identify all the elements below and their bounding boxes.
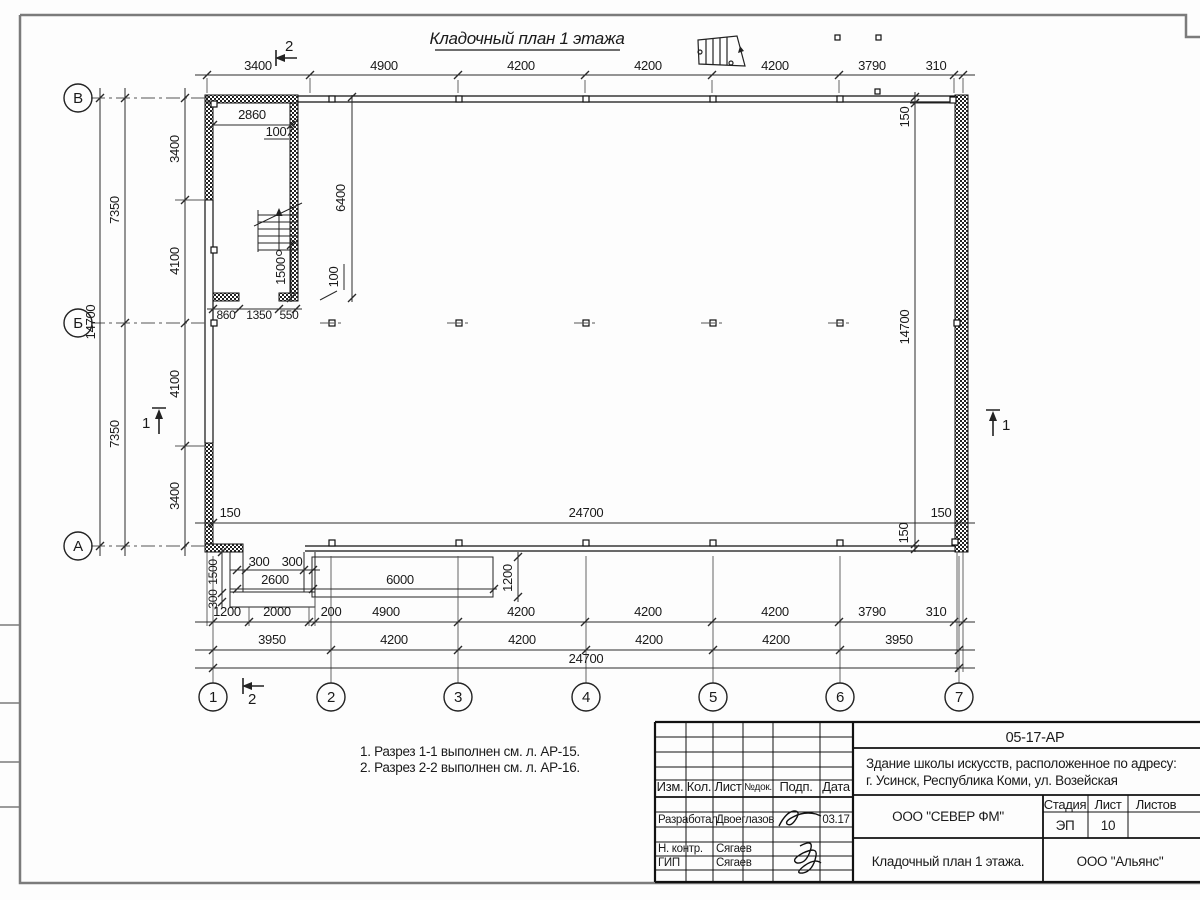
column-markers <box>211 35 960 546</box>
wall-left-top <box>205 95 213 200</box>
axis-bubble-3: 3 <box>454 689 462 706</box>
tb-org-main: ООО "СЕВЕР ФМ" <box>892 809 1004 824</box>
axis-bubble-7: 7 <box>955 689 963 706</box>
dim-label: 24700 <box>569 651 604 666</box>
dim-label: 3400 <box>167 482 182 510</box>
dim-label: 150 <box>931 505 952 520</box>
section-1-label-left: 1 <box>142 415 150 432</box>
axis-bubble-1: 1 <box>209 689 217 706</box>
dim-label: 1350 <box>246 308 272 322</box>
dim-label: 4200 <box>507 58 535 73</box>
dim-label: 1500 <box>206 559 220 585</box>
section-1-label-right: 1 <box>1002 417 1010 434</box>
tb-sheet-value: 10 <box>1101 818 1115 833</box>
dimensions <box>96 71 975 672</box>
dim-label: 14700 <box>897 310 912 345</box>
tb-name-gip: Сягаев <box>716 857 752 869</box>
tb-role-developer: Разработал <box>658 814 718 826</box>
dim-label: 4900 <box>372 604 400 619</box>
masonry-plan-drawing: Кладочный план 1 этажа <box>0 0 1200 900</box>
dim-label: 14700 <box>83 305 98 340</box>
notes: 1. Разрез 1-1 выполнен см. л. АР-15. 2. … <box>360 744 580 775</box>
dim-label: 1500 <box>273 257 288 285</box>
dim-label: 150 <box>896 523 911 544</box>
keyplan-symbol <box>698 36 745 66</box>
dim-label: 4200 <box>634 604 662 619</box>
axis-bubble-5: 5 <box>709 689 717 706</box>
dim-label: 4200 <box>762 632 790 647</box>
tb-sheet-title: Кладочный план 1 этажа. <box>872 854 1025 869</box>
plan-title: Кладочный план 1 этажа <box>430 29 625 48</box>
section-2-label-bottom: 2 <box>248 691 256 708</box>
title-block: Изм. Кол. Лист №док. Подп. Дата Разработ… <box>655 722 1200 882</box>
dim-label: 3950 <box>258 632 286 647</box>
dim-label: 4200 <box>635 632 663 647</box>
wall-left-bottom <box>205 443 213 552</box>
dim-label: 4200 <box>508 632 536 647</box>
dim-label: 1200 <box>213 604 241 619</box>
axis-bubble-a: А <box>73 538 83 555</box>
tb-org-secondary: ООО "Альянс" <box>1077 854 1164 869</box>
dim-label: 3400 <box>167 135 182 163</box>
dim-label: 310 <box>926 604 947 619</box>
wall-stair-stub-left <box>213 293 239 301</box>
dim-label: 3950 <box>885 632 913 647</box>
dim-label: 300 <box>282 554 303 569</box>
dim-label: 4900 <box>370 58 398 73</box>
dim-label: 4200 <box>761 604 789 619</box>
dim-label: 7350 <box>107 420 122 448</box>
axis-bubble-6: 6 <box>836 689 844 706</box>
wall-top-window <box>298 96 955 102</box>
tb-name-ncontr: Сягаев <box>716 843 752 855</box>
tb-col-data: Дата <box>822 779 851 794</box>
note-line-2: 2. Разрез 2-2 выполнен см. л. АР-16. <box>360 760 580 775</box>
axis-bubble-b: Б <box>73 315 83 332</box>
dim-label: 4200 <box>634 58 662 73</box>
tb-col-izm: Изм. <box>657 779 684 794</box>
tb-project-line2: г. Усинск, Республика Коми, ул. Возейска… <box>866 773 1118 788</box>
dim-label: 2860 <box>238 107 266 122</box>
dim-label: 200 <box>321 604 342 619</box>
dim-label: 100 <box>266 124 287 139</box>
tb-col-podp: Подп. <box>779 779 812 794</box>
wall-bottom-window <box>305 546 955 551</box>
note-line-1: 1. Разрез 1-1 выполнен см. л. АР-15. <box>360 744 580 759</box>
tb-role-ncontr: Н. контр. <box>658 843 703 855</box>
dim-label: 7350 <box>107 196 122 224</box>
section-2-label-top: 2 <box>285 38 293 55</box>
tb-project-line1: Здание школы искусств, расположенное по … <box>866 756 1177 771</box>
tb-doc-code: 05-17-АР <box>1006 730 1065 746</box>
dim-label: 4100 <box>167 370 182 398</box>
plan-title-group: Кладочный план 1 этажа <box>430 29 625 50</box>
dim-label: 3790 <box>858 58 886 73</box>
dim-label: 1200 <box>500 564 515 592</box>
tb-role-gip: ГИП <box>658 857 680 869</box>
dim-label: 2600 <box>261 572 289 587</box>
dim-label: 550 <box>279 308 299 322</box>
axis-bubble-2: 2 <box>327 689 335 706</box>
tb-sheets-label: Листов <box>1136 797 1177 812</box>
dim-label: 4200 <box>761 58 789 73</box>
tb-col-kol: Кол. <box>687 779 712 794</box>
dim-label: 100 <box>326 267 341 288</box>
dim-label: 860 <box>216 308 236 322</box>
dim-label: 4200 <box>507 604 535 619</box>
dim-label: 4100 <box>167 247 182 275</box>
drawing-sheet: Кладочный план 1 этажа <box>0 0 1200 900</box>
tb-name-developer: Двоеглазов <box>716 814 774 826</box>
dim-label: 6000 <box>386 572 414 587</box>
dim-label: 150 <box>220 505 241 520</box>
tb-date-developer: 03.17 <box>822 814 849 826</box>
dim-label: 150 <box>897 107 912 128</box>
dim-label: 3400 <box>244 58 272 73</box>
tb-stage-label: Стадия <box>1044 797 1087 812</box>
tb-col-list: Лист <box>714 779 741 794</box>
axis-bubble-4: 4 <box>582 689 590 706</box>
dim-label: 3790 <box>858 604 886 619</box>
axis-bubble-v: В <box>73 90 83 107</box>
tb-col-ndok: №док. <box>744 782 772 793</box>
dim-label: 6400 <box>333 184 348 212</box>
dim-label: 4200 <box>380 632 408 647</box>
dim-label: 300 <box>249 554 270 569</box>
tb-sheet-label: Лист <box>1094 797 1121 812</box>
dim-label: 24700 <box>569 505 604 520</box>
tb-stage-value: ЭП <box>1056 818 1075 833</box>
dim-label: 310 <box>926 58 947 73</box>
dim-label: 2000 <box>263 604 291 619</box>
wall-top-hatched <box>207 95 298 103</box>
